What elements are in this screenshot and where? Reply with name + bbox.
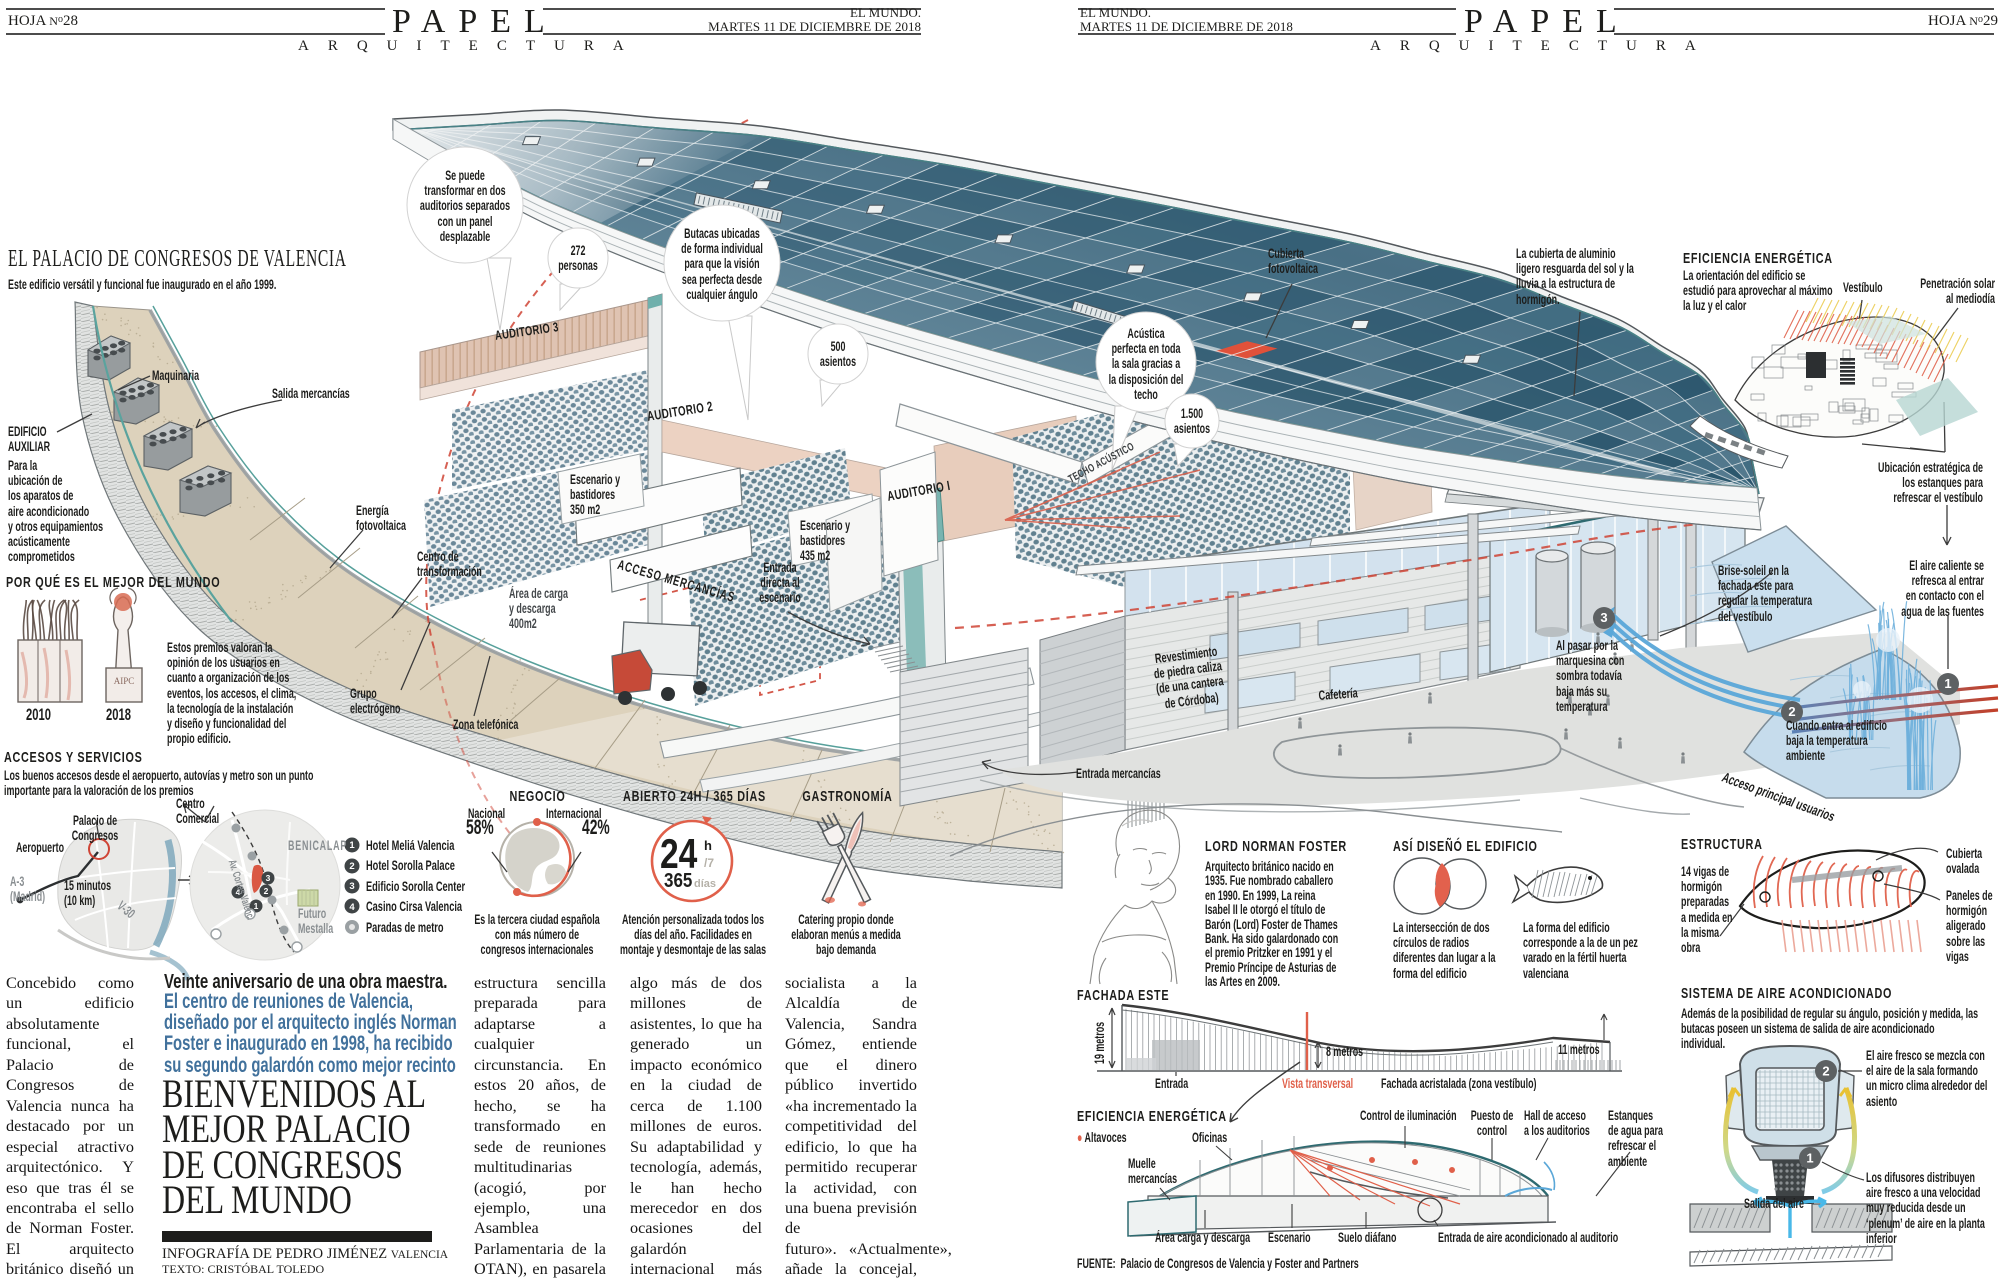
svg-text:1: 1 — [1806, 1151, 1813, 1166]
svg-text:2: 2 — [1822, 1064, 1829, 1079]
svg-text:3: 3 — [349, 881, 354, 892]
svg-text:AIPC: AIPC — [114, 676, 135, 686]
svg-text:2: 2 — [349, 861, 354, 872]
svg-text:3: 3 — [266, 873, 271, 883]
svg-text:2: 2 — [1788, 704, 1795, 719]
svg-text:1: 1 — [1944, 676, 1951, 691]
svg-text:1: 1 — [349, 840, 355, 851]
svg-text:2: 2 — [264, 886, 269, 896]
svg-text:4: 4 — [349, 902, 355, 913]
svg-text:3: 3 — [1600, 610, 1607, 625]
